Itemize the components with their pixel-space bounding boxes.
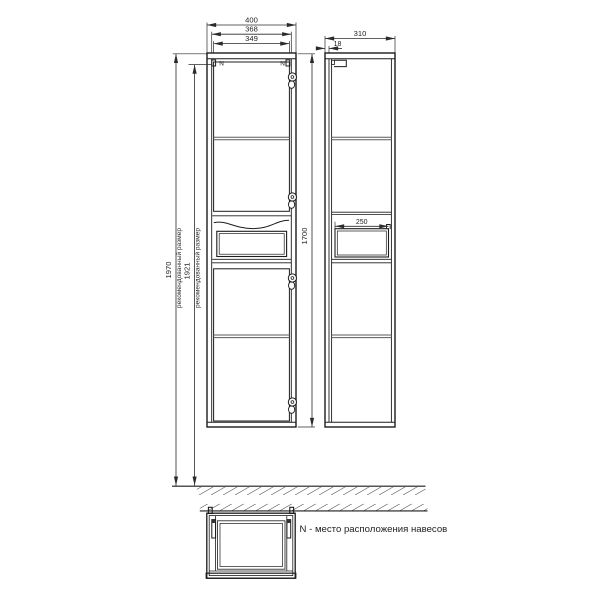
dimensions-left: 1970 рекомендованный размер 1921 рекомен… bbox=[164, 54, 212, 486]
wall-bracket-profile bbox=[332, 60, 347, 66]
dim-height-hanger: 1921 bbox=[182, 263, 191, 280]
top-view-hardware-left-cap bbox=[212, 520, 216, 523]
dim-depth-total: 310 bbox=[354, 29, 367, 38]
wall-hatch bbox=[200, 504, 428, 511]
niche-drawer-front bbox=[217, 231, 287, 256]
dim-height-body: 1700 bbox=[300, 228, 309, 245]
niche-handle-curve bbox=[214, 220, 289, 228]
floor-hatch bbox=[172, 486, 426, 495]
dim-height-hanger-label: рекомендованный размер bbox=[193, 228, 201, 308]
side-niche-box bbox=[335, 229, 389, 257]
front-outer-box bbox=[207, 53, 296, 427]
side-view: 250 bbox=[325, 53, 395, 427]
dimensions-top-front: 400 368 349 bbox=[207, 15, 296, 52]
hanger-mark-right: N bbox=[280, 60, 285, 67]
hanger-mark-left: N bbox=[219, 60, 224, 67]
hanger-note: N - место расположения навесов bbox=[300, 524, 448, 535]
dim-width-total: 400 bbox=[245, 15, 258, 24]
front-niche bbox=[212, 216, 291, 263]
top-view-hardware-right-cap bbox=[287, 520, 291, 523]
wall-hatching bbox=[200, 504, 428, 511]
dimension-body-height: 1700 bbox=[298, 54, 315, 427]
dimensions-top-side: 310 18 bbox=[317, 29, 396, 53]
front-upper-door bbox=[214, 62, 290, 211]
top-view-interior bbox=[217, 521, 285, 569]
side-niche: 250 bbox=[332, 212, 392, 263]
front-lower-door bbox=[214, 269, 290, 421]
floor-hatching bbox=[197, 487, 426, 495]
technical-drawing-canvas: N N 250 bbox=[0, 0, 600, 600]
drawing-svg: N N 250 bbox=[0, 0, 600, 600]
dim-door-thickness: 18 bbox=[334, 41, 342, 48]
dim-niche-depth: 250 bbox=[356, 219, 368, 226]
top-view bbox=[206, 507, 296, 578]
dim-height-total: 1970 bbox=[164, 262, 173, 279]
dim-width-inner: 368 bbox=[245, 25, 258, 34]
dim-width-door: 349 bbox=[245, 34, 258, 43]
front-view: N N bbox=[207, 53, 297, 427]
